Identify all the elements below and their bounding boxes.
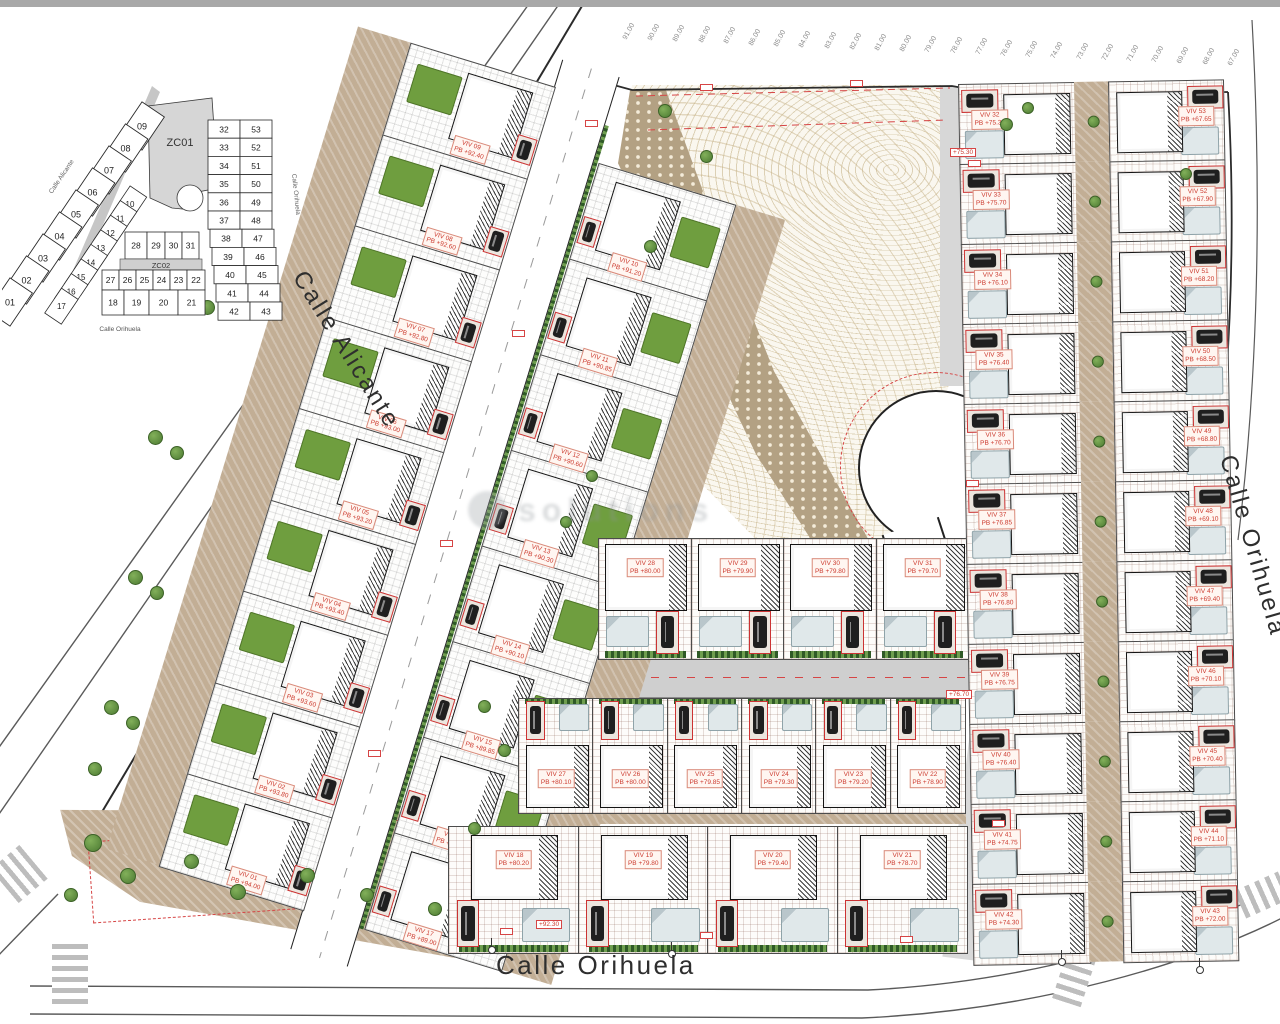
building-footprint [595, 182, 680, 271]
villa-id: VIV 18 [498, 852, 529, 860]
tree-icon [644, 240, 657, 253]
car-icon [435, 699, 451, 721]
parking-space [824, 701, 842, 739]
car-icon [968, 173, 995, 187]
svg-text:29: 29 [151, 241, 161, 251]
pool-lawn [294, 429, 351, 481]
roof-hatch [946, 545, 964, 610]
building-footprint [1127, 731, 1194, 793]
villa-plot: VIV 26PB +80.00 [592, 698, 668, 814]
car-icon [1193, 170, 1219, 184]
villa-plot: VIV 25PB +79.85 [667, 698, 743, 814]
roof-hatch [539, 836, 558, 899]
walkway-spine [1085, 721, 1120, 802]
svg-text:20: 20 [159, 298, 169, 308]
villa-level: PB +79.40 [757, 860, 788, 868]
tree-icon [478, 700, 491, 713]
villa-plot: VIV 42PB +74.30 [972, 882, 1091, 966]
villa-level: PB +72.00 [1195, 916, 1226, 924]
villa-plot: VIV 36PB +76.70 [964, 402, 1083, 486]
lamp-icon [488, 946, 496, 954]
car-icon [846, 616, 859, 648]
parking-space [586, 900, 609, 947]
pool [1189, 607, 1228, 635]
parking-space [934, 611, 956, 654]
building-footprint [1126, 651, 1193, 713]
car-icon [975, 573, 1002, 587]
villa-plot: VIV 33PB +75.70 [959, 162, 1078, 246]
car-icon [1196, 330, 1222, 344]
car-icon [978, 733, 1005, 747]
building-footprint [1123, 491, 1190, 553]
parking-space [656, 611, 678, 654]
car-icon [753, 706, 764, 734]
villa-label: VIV 25PB +79.85 [686, 769, 723, 789]
villa-label: VIV 50PB +68.50 [1182, 346, 1219, 366]
villa-plot: VIV 30PB +79.80 [783, 538, 878, 660]
villa-id: VIV 20 [757, 852, 788, 860]
villa-level: PB +68.80 [1187, 436, 1218, 444]
svg-text:47: 47 [253, 234, 263, 244]
villa-plot: VIV 40PB +76.40 [969, 722, 1088, 806]
building-footprint [1124, 571, 1191, 633]
roof-hatch [1061, 414, 1076, 473]
car-icon [515, 139, 532, 161]
tree-icon [104, 700, 119, 715]
tree-icon [1095, 515, 1107, 527]
svg-text:49: 49 [251, 197, 261, 207]
roof-hatch [871, 746, 884, 808]
villa-id: VIV 31 [907, 560, 938, 568]
tree-icon [1092, 355, 1104, 367]
tree-icon [1089, 196, 1101, 208]
roof-hatch [1068, 814, 1083, 873]
pool [884, 616, 927, 647]
villa-label: VIV 19PB +79.80 [625, 850, 662, 870]
car-icon [581, 221, 597, 243]
villa-level: PB +79.85 [689, 779, 720, 787]
villa-level: PB +79.80 [628, 860, 659, 868]
tree-icon [1000, 118, 1013, 131]
villa-plot: VIV 39PB +76.75 [968, 642, 1087, 726]
parking-space [601, 701, 619, 739]
villa-plot: VIV 52PB +67.90 [1109, 159, 1226, 243]
roof-hatch [587, 389, 621, 460]
car-icon [976, 653, 1003, 667]
villa-label: VIV 42PB +74.30 [985, 909, 1022, 929]
car-icon [1199, 490, 1225, 504]
villa-level: PB +70.40 [1192, 756, 1223, 764]
tree-icon [498, 744, 511, 757]
car-icon [461, 906, 475, 941]
car-icon [969, 253, 996, 267]
roof-hatch [574, 746, 587, 808]
villa-level: PB +76.75 [984, 679, 1015, 687]
villa-label: VIV 21PB +78.70 [884, 850, 921, 870]
villa-level: PB +70.10 [1191, 676, 1222, 684]
crosswalk-southwest [52, 944, 88, 1004]
pool [559, 704, 589, 731]
parking-space [716, 900, 739, 947]
pool [976, 771, 1016, 799]
car-icon [720, 906, 734, 941]
road-elevation-mark: +92.30 [536, 920, 562, 929]
building-footprint [1007, 333, 1075, 395]
pool [708, 704, 738, 731]
dimension-tick [368, 750, 381, 757]
villa-label: VIV 41PB +74.75 [984, 829, 1021, 849]
car-icon [494, 507, 510, 529]
building-footprint [1013, 653, 1081, 715]
tree-icon [148, 430, 163, 445]
pool [977, 850, 1017, 878]
car-icon [604, 706, 615, 734]
roof-hatch [649, 746, 662, 808]
villa-label: VIV 35PB +76.40 [976, 349, 1013, 369]
pool [1192, 767, 1231, 795]
car-icon [432, 413, 449, 435]
villa-label: VIV 33PB +75.70 [973, 190, 1010, 210]
villa-level: PB +74.75 [987, 839, 1018, 847]
villa-label: VIV 51PB +68.20 [1181, 266, 1218, 286]
pool [1182, 207, 1221, 235]
street-label-calle-orihuela-south: Calle Orihuela [496, 950, 696, 981]
roof-hatch [927, 836, 946, 899]
villa-level: PB +76.80 [983, 599, 1014, 607]
villa-level: PB +69.10 [1188, 516, 1219, 524]
building-footprint [1006, 253, 1074, 315]
villa-id: VIV 25 [689, 771, 720, 779]
walkway-spine [1080, 401, 1115, 482]
building-footprint [1117, 171, 1184, 233]
pool-lawn [640, 312, 692, 364]
roof-hatch [645, 198, 679, 269]
car-icon [902, 706, 913, 734]
building-footprint [1003, 93, 1071, 155]
car-icon [376, 596, 393, 618]
pool [781, 908, 830, 943]
building-footprint [1012, 573, 1080, 635]
pool-lawn [211, 703, 268, 755]
villa-id: VIV 22 [912, 771, 943, 779]
building-footprint [1009, 413, 1077, 475]
villa-label: VIV 23PB +79.20 [835, 769, 872, 789]
pool [931, 704, 961, 731]
villa-level: PB +80.10 [541, 779, 572, 787]
villa-label: VIV 26PB +80.00 [612, 769, 649, 789]
car-icon [406, 794, 422, 816]
pool [782, 704, 812, 731]
pool [978, 930, 1018, 958]
road-southwest-exit [0, 894, 58, 964]
car-icon [1197, 410, 1223, 424]
roof-hatch [1069, 894, 1084, 953]
villa-label: VIV 34PB +76.10 [974, 269, 1011, 289]
pool [967, 291, 1007, 319]
parking-space [845, 900, 868, 947]
svg-text:ZC02: ZC02 [152, 261, 170, 270]
parking-space [457, 900, 480, 947]
tree-icon [1102, 915, 1114, 927]
villa-label: VIV 46PB +70.10 [1188, 666, 1225, 686]
svg-text:ZC01: ZC01 [167, 137, 194, 149]
tree-icon [1097, 675, 1109, 687]
building-footprint [1116, 91, 1183, 153]
villa-level: PB +79.90 [722, 568, 753, 576]
villa-level: PB +74.30 [988, 919, 1019, 927]
dimension-tick [440, 540, 453, 547]
parking-space [526, 701, 544, 739]
svg-text:31: 31 [186, 241, 196, 251]
villa-label: VIV 44PB +71.10 [1190, 826, 1227, 846]
dimension-tick [700, 84, 713, 91]
svg-text:28: 28 [131, 241, 141, 251]
villa-id: VIV 28 [630, 560, 661, 568]
svg-text:38: 38 [221, 234, 231, 244]
svg-text:Calle Alicante: Calle Alicante [48, 158, 76, 195]
villa-level: PB +80.00 [615, 779, 646, 787]
tree-icon [88, 762, 102, 776]
pool-lawn [669, 216, 721, 268]
pool [974, 691, 1014, 719]
villa-label: VIV 40PB +76.40 [983, 749, 1020, 769]
villa-plot: VIV 38PB +76.80 [966, 562, 1085, 646]
villa-label: VIV 24PB +79.30 [761, 769, 798, 789]
villa-id: VIV 27 [541, 771, 572, 779]
roof-hatch [1066, 734, 1081, 793]
car-icon [1202, 649, 1228, 663]
roof-hatch [761, 545, 779, 610]
villa-id: VIV 21 [887, 852, 918, 860]
roof-hatch [797, 746, 810, 808]
villa-plot: VIV 19PB +79.80 [578, 826, 710, 954]
townhouse-row-27-22: VIV 27PB +80.10VIV 26PB +80.00VIV 25PB +… [518, 698, 964, 812]
svg-text:01: 01 [5, 298, 15, 308]
villa-label: VIV 43PB +72.00 [1192, 906, 1229, 926]
svg-text:39: 39 [223, 252, 233, 262]
svg-text:37: 37 [219, 216, 229, 226]
tree-icon [586, 470, 598, 482]
pool-lawn [552, 599, 604, 651]
parking-space [841, 611, 863, 654]
tree-icon [126, 716, 140, 730]
walkway-spine [1082, 561, 1117, 642]
building-footprint [1014, 733, 1082, 795]
villa-id: VIV 24 [764, 771, 795, 779]
pool [699, 616, 742, 647]
svg-text:41: 41 [227, 288, 237, 298]
villa-label: VIV 29PB +79.90 [719, 558, 756, 578]
svg-text:23: 23 [174, 275, 184, 285]
car-icon [1203, 729, 1229, 743]
villa-level: PB +76.10 [977, 279, 1008, 287]
building-footprint [1130, 891, 1197, 953]
villa-id: VIV 23 [838, 771, 869, 779]
car-icon [1200, 570, 1226, 584]
tree-icon [560, 516, 572, 528]
pool-lawn [266, 520, 323, 572]
lamp-icon [1196, 966, 1204, 974]
svg-text:25: 25 [140, 275, 150, 285]
pool-lawn [406, 64, 463, 116]
walkway-spine [1074, 81, 1109, 162]
car-icon [981, 893, 1008, 907]
pool-lawn [238, 612, 295, 664]
svg-text:35: 35 [219, 179, 229, 189]
roof-hatch [1055, 94, 1070, 153]
tree-icon [1100, 835, 1112, 847]
roof-hatch [798, 836, 817, 899]
tree-icon [184, 854, 199, 869]
svg-text:44: 44 [259, 288, 269, 298]
car-icon [591, 906, 605, 941]
villa-level: PB +75.70 [976, 199, 1007, 207]
car-icon [967, 93, 994, 107]
villa-level: PB +71.10 [1194, 836, 1225, 844]
tree-icon [1180, 168, 1192, 180]
villa-level: PB +78.70 [887, 860, 918, 868]
villa-plot: VIV 51PB +68.20 [1111, 239, 1228, 323]
villa-label: VIV 28PB +80.00 [627, 558, 664, 578]
pool [633, 704, 663, 731]
road-elevation-mark: +76.70 [946, 690, 972, 699]
car-icon [523, 412, 539, 434]
villa-plot: VIV 48PB +69.10 [1115, 479, 1232, 563]
pool [651, 908, 700, 943]
pool [1187, 527, 1226, 555]
villa-plot: VIV 31PB +79.70 [876, 538, 971, 660]
tree-icon [84, 834, 102, 852]
svg-text:36: 36 [219, 197, 229, 207]
svg-text:09: 09 [137, 122, 147, 132]
tree-icon [658, 104, 672, 118]
dimension-tick [512, 330, 525, 337]
walkway-spine [1078, 321, 1113, 402]
svg-text:22: 22 [191, 275, 201, 285]
pool [606, 616, 649, 647]
villa-label: VIV 31PB +79.70 [904, 558, 941, 578]
svg-text:19: 19 [132, 298, 142, 308]
building-footprint [1120, 331, 1187, 393]
villa-level: PB +68.50 [1185, 356, 1216, 364]
car-icon [850, 906, 864, 941]
parking-space [749, 701, 767, 739]
car-icon [679, 706, 690, 734]
car-icon [827, 706, 838, 734]
road-elevation-mark: +75.30 [950, 148, 976, 157]
svg-text:21: 21 [187, 298, 197, 308]
svg-text:34: 34 [219, 161, 229, 171]
car-icon [972, 413, 999, 427]
tree-icon [468, 822, 481, 835]
pool [910, 908, 959, 943]
svg-text:24: 24 [157, 275, 167, 285]
villa-plot: VIV 22PB +78.90 [890, 698, 966, 814]
roof-hatch [1059, 334, 1074, 393]
svg-text:33: 33 [219, 143, 229, 153]
tree-icon [230, 884, 246, 900]
villa-level: PB +67.65 [1181, 116, 1212, 124]
car-icon [404, 504, 421, 526]
car-icon [460, 322, 477, 344]
walkway-spine [1087, 801, 1122, 882]
villa-label: VIV 18PB +80.20 [495, 850, 532, 870]
car-icon [974, 493, 1001, 507]
car-icon [1206, 889, 1232, 903]
window-top-bar [0, 0, 1280, 7]
villa-id: VIV 19 [628, 852, 659, 860]
dimension-tick [992, 820, 1005, 827]
svg-text:08: 08 [120, 144, 130, 154]
car-icon [488, 230, 505, 252]
roof-hatch [1065, 654, 1080, 713]
villa-plot: VIV 20PB +79.40 [707, 826, 839, 954]
pool [791, 616, 834, 647]
roof-hatch [946, 746, 959, 808]
key-plan: ZC01090807060504030201101112131415161728… [2, 42, 322, 337]
villa-plot: VIV 23PB +79.20 [815, 698, 891, 814]
villa-label: VIV 37PB +76.85 [978, 509, 1015, 529]
villa-level: PB +79.70 [907, 568, 938, 576]
villa-level: PB +76.40 [986, 759, 1017, 767]
villas-cluster-east: VIV 32PB +75.30VIV 53PB +67.65VIV 33PB +… [958, 79, 1237, 963]
svg-text:53: 53 [251, 125, 261, 135]
pool [1193, 847, 1232, 875]
svg-text:17: 17 [57, 302, 66, 311]
villa-label: VIV 27PB +80.10 [538, 769, 575, 789]
roof-hatch [668, 836, 687, 899]
pool [971, 531, 1011, 559]
building-footprint [537, 373, 622, 462]
tree-icon [1090, 276, 1102, 288]
villa-label: VIV 36PB +76.70 [977, 429, 1014, 449]
tree-icon [700, 150, 713, 163]
svg-text:05: 05 [71, 210, 81, 220]
svg-text:04: 04 [54, 232, 64, 242]
svg-text:52: 52 [251, 143, 261, 153]
pool [1183, 287, 1222, 315]
svg-text:02: 02 [21, 276, 31, 286]
villa-plot: VIV 46PB +70.10 [1118, 639, 1235, 723]
villa-plot: VIV 49PB +68.80 [1114, 399, 1231, 483]
roof-hatch [1058, 254, 1073, 313]
svg-text:18: 18 [108, 298, 118, 308]
tree-icon [1096, 595, 1108, 607]
townhouse-row-28-31: VIV 28PB +80.00VIV 29PB +79.90VIV 30PB +… [598, 538, 968, 658]
villa-plot: VIV 18PB +80.20 [448, 826, 580, 954]
villa-level: PB +68.20 [1184, 276, 1215, 284]
tree-icon [360, 888, 374, 902]
pool [1190, 687, 1229, 715]
villa-label: VIV 49PB +68.80 [1183, 426, 1220, 446]
parking-space [675, 701, 693, 739]
svg-text:50: 50 [251, 179, 261, 189]
villa-level: PB +76.85 [981, 519, 1012, 527]
svg-text:51: 51 [251, 161, 261, 171]
villa-plot: VIV 44PB +71.10 [1121, 799, 1238, 883]
villa-id: VIV 29 [722, 560, 753, 568]
roof-hatch [616, 294, 650, 365]
car-icon [377, 890, 393, 912]
svg-text:42: 42 [229, 307, 239, 317]
villa-level: PB +80.20 [498, 860, 529, 868]
dimension-tick [500, 928, 513, 935]
tree-icon [1099, 755, 1111, 767]
villa-label: VIV 48PB +69.10 [1185, 506, 1222, 526]
roof-hatch [528, 580, 562, 651]
villa-plot: VIV 24PB +79.30 [741, 698, 817, 814]
roof-hatch [1056, 174, 1071, 233]
